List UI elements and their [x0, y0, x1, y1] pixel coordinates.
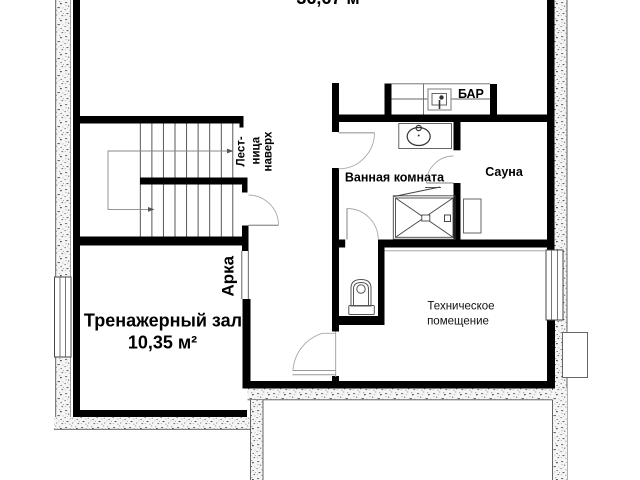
svg-text:10,35 м²: 10,35 м²: [128, 333, 197, 353]
svg-text:Тренажерный зал: Тренажерный зал: [84, 311, 242, 331]
svg-text:Техническое: Техническое: [427, 301, 494, 313]
svg-text:Лест-: Лест-: [235, 136, 247, 166]
svg-text:Сауна: Сауна: [485, 165, 524, 179]
svg-text:Арка: Арка: [219, 255, 238, 296]
svg-text:БАР: БАР: [458, 87, 484, 101]
svg-text:ница: ница: [250, 136, 262, 164]
svg-text:36,67 м²: 36,67 м²: [296, 0, 365, 8]
svg-text:помещение: помещение: [427, 316, 489, 328]
svg-text:наверх: наверх: [263, 131, 275, 172]
